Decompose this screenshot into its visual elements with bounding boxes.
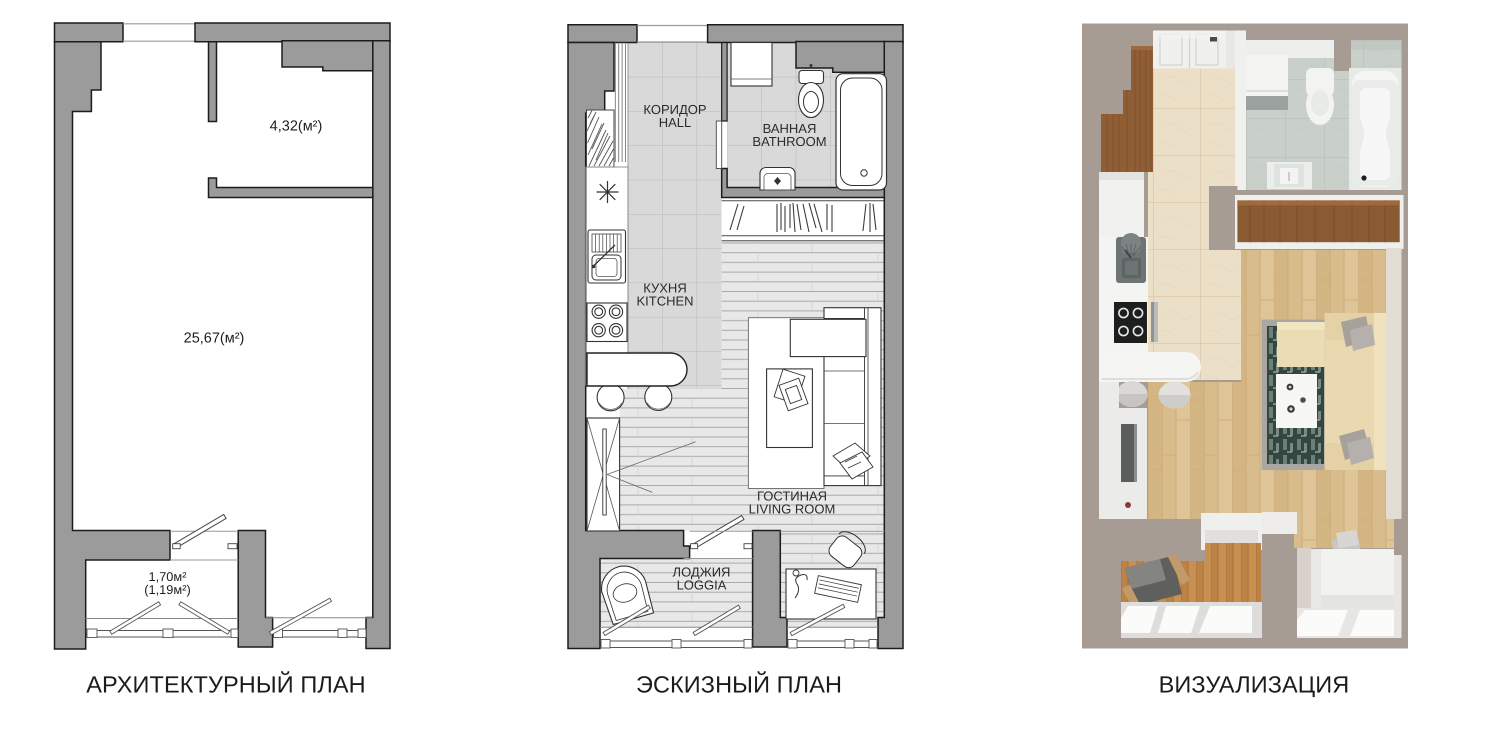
svg-text:4,32(м²): 4,32(м²) — [270, 119, 323, 135]
svg-text:LOGGIA: LOGGIA — [677, 578, 727, 593]
svg-text:HALL: HALL — [659, 115, 692, 130]
svg-text:BATHROOM: BATHROOM — [752, 134, 826, 149]
svg-text:KITCHEN: KITCHEN — [636, 294, 693, 309]
svg-text:LIVING ROOM: LIVING ROOM — [749, 502, 836, 517]
svg-text:(1,19м²): (1,19м²) — [144, 582, 191, 597]
svg-text:ЭСКИЗНЫЙ ПЛАН: ЭСКИЗНЫЙ ПЛАН — [636, 671, 842, 698]
svg-text:ВИЗУАЛИЗАЦИЯ: ВИЗУАЛИЗАЦИЯ — [1159, 672, 1350, 698]
svg-text:25,67(м²): 25,67(м²) — [184, 331, 245, 347]
svg-text:АРХИТЕКТУРНЫЙ ПЛАН: АРХИТЕКТУРНЫЙ ПЛАН — [86, 671, 366, 698]
